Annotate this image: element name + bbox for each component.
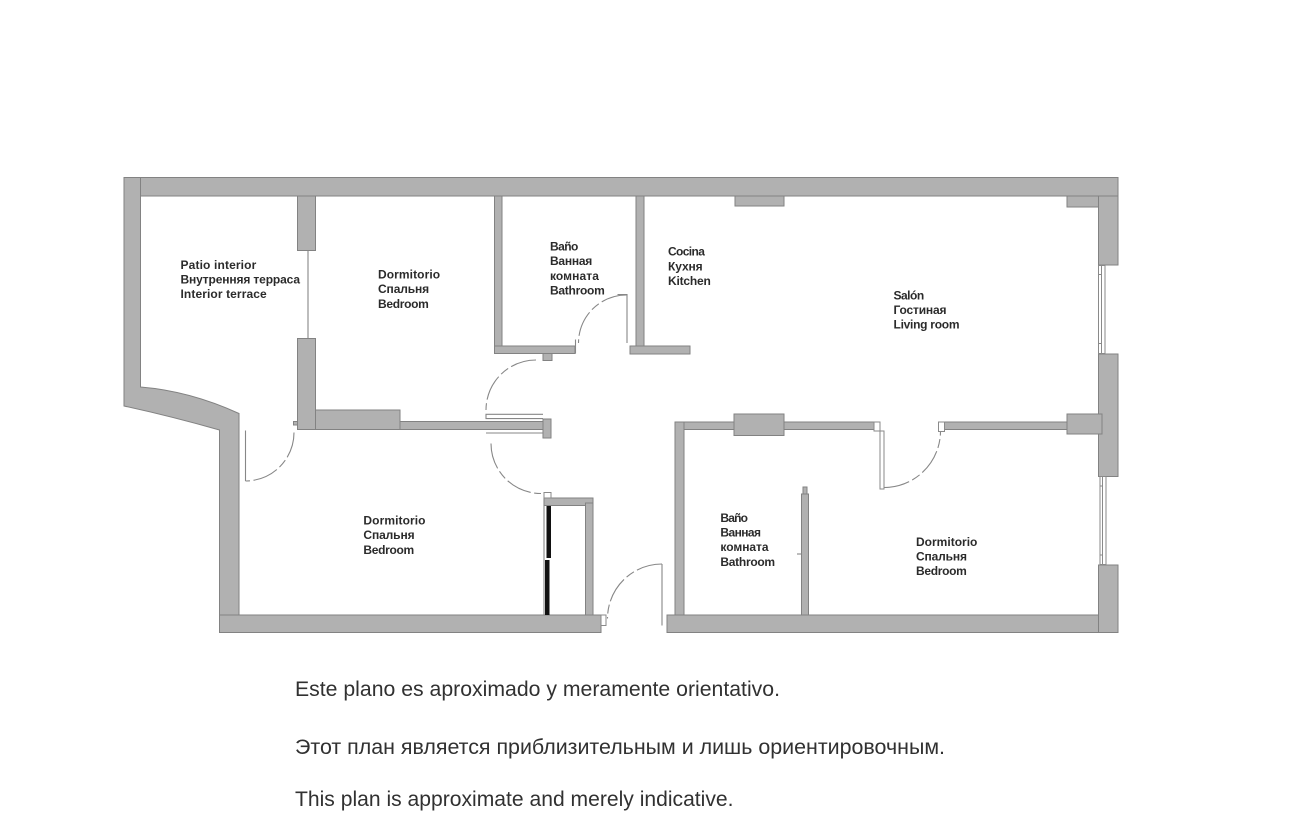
svg-text:Кухня: Кухня	[668, 259, 703, 273]
svg-text:Salón: Salón	[894, 289, 925, 303]
svg-text:Bathroom: Bathroom	[720, 555, 775, 569]
svg-text:Dormitorio: Dormitorio	[916, 535, 977, 549]
svg-text:This plan is approximate and m: This plan is approximate and merely indi…	[295, 787, 734, 811]
svg-text:Спальня: Спальня	[378, 282, 429, 296]
svg-text:комната: комната	[550, 269, 599, 283]
svg-text:Этот план является приблизител: Этот план является приблизительным и лиш…	[295, 735, 945, 759]
svg-text:Cocina: Cocina	[668, 245, 705, 259]
svg-text:Dormitorio: Dormitorio	[378, 268, 440, 282]
svg-text:Kitchen: Kitchen	[668, 274, 711, 288]
svg-text:Bedroom: Bedroom	[916, 564, 967, 578]
svg-text:Patio interior: Patio interior	[181, 258, 257, 272]
svg-text:Ванная: Ванная	[550, 254, 592, 268]
svg-text:Interior terrace: Interior terrace	[181, 287, 268, 301]
svg-text:Dormitorio: Dormitorio	[363, 514, 425, 528]
svg-text:Спальня: Спальня	[363, 528, 414, 542]
svg-text:Baño: Baño	[550, 239, 578, 253]
svg-text:Baño: Baño	[720, 511, 748, 525]
svg-text:Este plano es aproximado y mer: Este plano es aproximado y meramente ori…	[295, 677, 780, 701]
svg-text:Bedroom: Bedroom	[378, 297, 429, 311]
svg-text:Спальня: Спальня	[916, 549, 967, 563]
svg-text:Внутренняя терраса: Внутренняя терраса	[181, 273, 301, 287]
svg-text:комната: комната	[720, 540, 769, 554]
svg-text:Bedroom: Bedroom	[363, 543, 414, 557]
svg-text:Ванная: Ванная	[720, 526, 761, 540]
svg-text:Bathroom: Bathroom	[550, 284, 605, 298]
svg-text:Living room: Living room	[894, 318, 960, 332]
svg-text:Гостиная: Гостиная	[894, 303, 947, 317]
